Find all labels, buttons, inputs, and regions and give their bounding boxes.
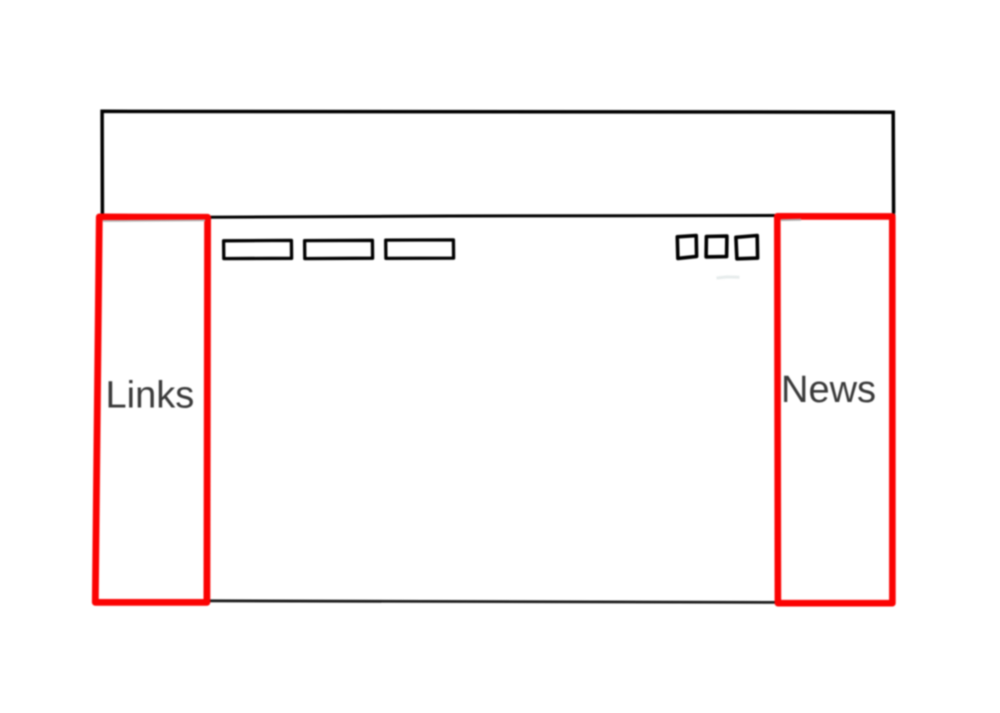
svg-text:Links: Links [106,375,195,417]
svg-text:News: News [781,369,876,411]
